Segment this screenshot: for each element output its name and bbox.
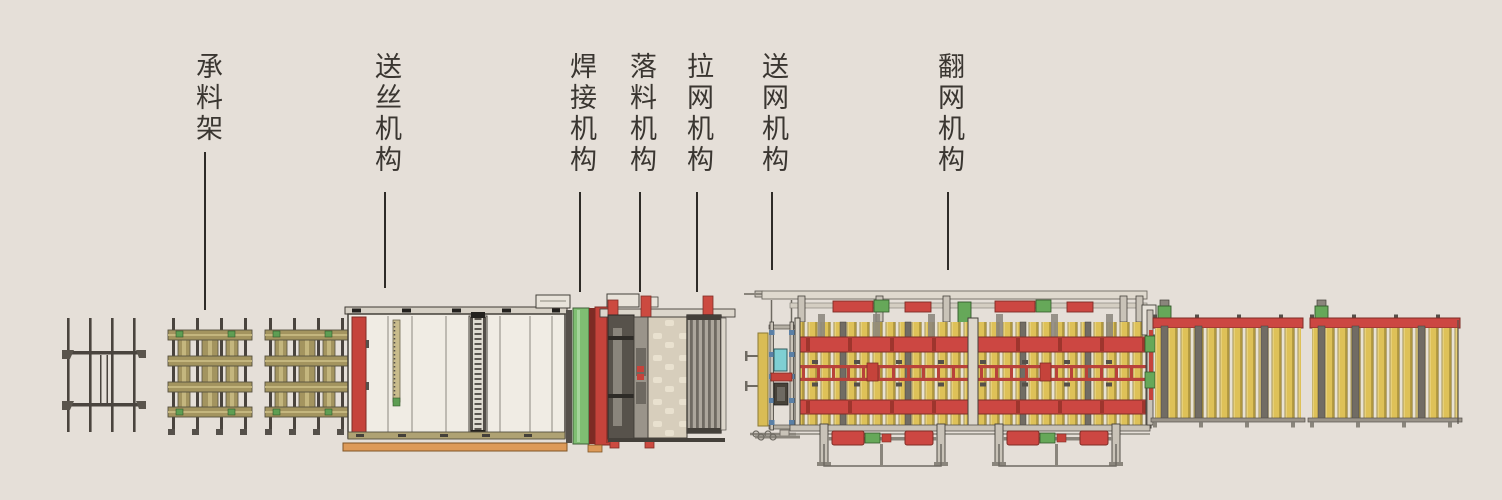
blanking-panel	[648, 317, 687, 438]
top-green-box	[1036, 300, 1051, 312]
wire-feeding-group	[343, 295, 570, 451]
roller-conveyor-1-group	[1142, 300, 1305, 425]
roller-conveyor-2-group	[1308, 300, 1462, 425]
wire-feeding-red-bar	[352, 317, 366, 434]
machinery-drawing	[0, 0, 1502, 500]
welding-group	[566, 307, 611, 452]
welding-green-strip	[573, 308, 589, 444]
material-rack-group	[62, 318, 349, 432]
mesh-pulling-group	[687, 315, 726, 433]
top-red-slab	[833, 301, 873, 312]
top-green-box	[874, 300, 889, 312]
blanking-red-post	[641, 296, 651, 318]
material-rack-frame-3	[265, 318, 349, 432]
wire-feeding-base-bar	[343, 443, 567, 451]
wire-feeding-body	[348, 314, 565, 438]
top-red-slab	[995, 301, 1035, 312]
red-top-band-bay-1	[800, 337, 968, 352]
material-rack-frame-2	[168, 318, 252, 432]
mesh-flipping-group	[755, 291, 1151, 466]
mesh-feeding-group	[744, 291, 796, 438]
red-bottom-band-bay-1	[800, 400, 968, 414]
mesh-pulling-roller	[687, 315, 721, 433]
mesh-feeding-yellow-bar	[758, 333, 768, 426]
material-rack-frame-1	[62, 318, 146, 432]
diagram-canvas: 承料架 送丝机构 焊接机构 落料机构 拉网机构 送网机构 翻网机构	[0, 0, 1502, 500]
mesh-feeding-cyan-box	[774, 349, 787, 371]
